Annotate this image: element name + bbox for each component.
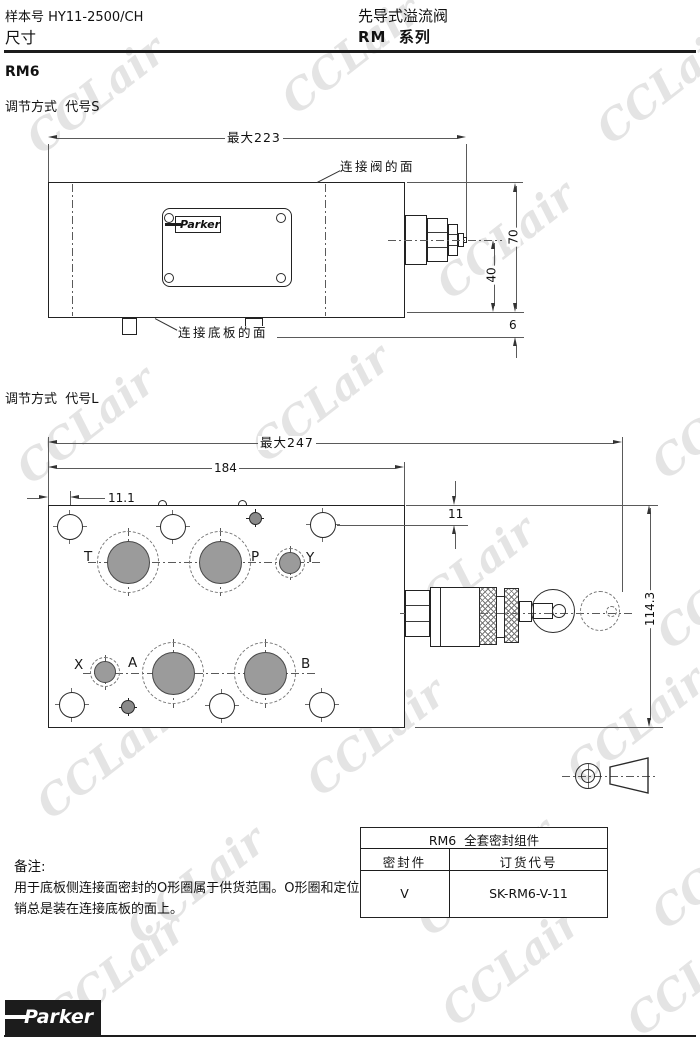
lock-neck: [497, 637, 504, 638]
bolt-hole: [160, 514, 186, 540]
extension-line: [404, 462, 405, 505]
hex-facet: [449, 234, 457, 235]
dim-6-tail: [516, 346, 517, 358]
port-p-label: P: [251, 549, 259, 565]
nameplate-screw-hole: [276, 273, 286, 283]
dim-11-tail: [455, 481, 456, 496]
dim-arrow: [491, 240, 495, 249]
extension-line: [466, 144, 467, 237]
port-b-label: B: [301, 656, 310, 672]
dim-max247-line: [57, 443, 614, 444]
dim-arrow: [613, 440, 622, 444]
extension-line: [407, 182, 523, 183]
series-title: RM 系列: [358, 26, 431, 47]
port-y-label: Y: [306, 550, 314, 566]
dim-arrow: [513, 303, 517, 312]
dim-arrow: [39, 495, 48, 499]
footer-parker-text: Parker: [24, 1006, 93, 1028]
dim-arrow: [647, 718, 651, 727]
plate-face-label: 连接底板的面: [178, 326, 268, 340]
dim-70-line: [516, 186, 517, 309]
centerline: [72, 184, 73, 316]
table-seal-value: V: [360, 886, 449, 901]
key-hole: [552, 604, 566, 618]
dim-arrow: [48, 135, 57, 139]
port-x-label: X: [74, 657, 83, 673]
dim-arrow: [452, 525, 456, 534]
bolt-hole: [57, 514, 83, 540]
pin-front-inner: [581, 769, 595, 783]
dim-arrow: [513, 337, 517, 346]
notes-line2: 销总是装在连接底板的面上。: [14, 898, 183, 917]
hex-facet: [428, 232, 447, 233]
extension-line: [48, 437, 49, 505]
centerline: [325, 184, 326, 316]
port-b: [244, 652, 287, 695]
product-title: 先导式溢流阀: [358, 5, 448, 26]
valve-face-label: 连接阀的面: [340, 160, 415, 174]
watermark-text: CCLair: [642, 350, 700, 488]
dim-arrow: [48, 465, 57, 469]
watermark-text: CCLair: [242, 333, 400, 471]
dim-70-text: 70: [507, 227, 521, 246]
notes-line1: 用于底板侧连接面密封的O形圈属于供货范围。O形圈和定位: [14, 877, 359, 896]
watermark-text: CCLair: [432, 897, 590, 1035]
screw: [249, 512, 262, 525]
model-label: RM6: [5, 64, 39, 80]
leader-line: [155, 318, 178, 331]
key-alt-hole: [606, 606, 617, 617]
watermark-text: CCLair: [17, 25, 175, 163]
parker-nameplate-logo: Parker: [180, 218, 220, 231]
dim-arrow: [70, 495, 79, 499]
watermark-text: CCLair: [7, 355, 165, 493]
dim-arrow: [48, 440, 57, 444]
port-a: [152, 652, 195, 695]
dim-arrow: [452, 496, 456, 505]
extension-line: [277, 337, 524, 338]
dim-184-text: 184: [212, 461, 239, 475]
top-pin-bump: [238, 500, 247, 505]
dim-6-text: 6: [507, 318, 519, 332]
lock-neck: [497, 596, 504, 597]
locating-pin: [122, 318, 137, 335]
port-a-label: A: [128, 655, 137, 671]
hex-facet: [428, 247, 447, 248]
bolt-hole: [209, 693, 235, 719]
bolt-hole: [309, 692, 335, 718]
hex-facet: [406, 621, 429, 622]
extension-line: [48, 144, 49, 182]
table-col-seal: 密封件: [360, 852, 449, 871]
nameplate-screw-hole: [164, 273, 174, 283]
watermark-text: CCLair: [617, 907, 700, 1037]
nameplate-screw-hole: [164, 213, 174, 223]
bolt-hole: [310, 512, 336, 538]
lock-hex-nut: [405, 590, 430, 637]
port-p: [199, 541, 242, 584]
extension-line: [407, 312, 524, 313]
dim-arrow: [647, 505, 651, 514]
footer-rule: [4, 1035, 696, 1037]
bolt-hole: [59, 692, 85, 718]
extension-line: [406, 505, 658, 506]
hex-facet: [449, 245, 457, 246]
drawing2-caption: 调节方式 代号L: [5, 388, 99, 407]
lock-cylinder-step: [440, 588, 441, 646]
dim-max247-text: 最大247: [258, 436, 316, 450]
pin-side-view-icon: [608, 755, 652, 797]
port-x: [94, 661, 116, 683]
table-col-code: 订货代号: [449, 852, 608, 871]
dim-11-tail: [455, 534, 456, 549]
header-rule: [4, 50, 696, 53]
dim-11-text: 11: [446, 507, 465, 521]
port-t: [107, 541, 150, 584]
dim-11-1-text: 11.1: [106, 491, 137, 505]
extension-line: [337, 525, 468, 526]
hex-facet: [406, 605, 429, 606]
port-y: [279, 552, 301, 574]
lock-cylinder: [430, 587, 480, 647]
knurled-ring: [504, 588, 519, 643]
dim-11-1-tail: [27, 498, 39, 499]
dim-arrow: [491, 303, 495, 312]
doc-number: 样本号 HY11-2500/CH: [5, 6, 143, 25]
table-code-value: SK-RM6-V-11: [449, 886, 608, 901]
screw: [121, 700, 135, 714]
datasheet-page: CCLair CCLair CCLair CCLair CCLair CCLai…: [0, 0, 700, 1037]
watermark-text: CCLair: [587, 15, 700, 153]
dim-arrow: [395, 465, 404, 469]
dim-40-text: 40: [485, 265, 499, 284]
extension-line: [622, 437, 623, 592]
dim-arrow: [457, 135, 466, 139]
dim-max223-text: 最大223: [225, 131, 283, 145]
port-t-label: T: [84, 549, 92, 565]
page-title: 尺寸: [5, 26, 36, 48]
table-title: RM6 全套密封组件: [360, 830, 608, 849]
knurled-ring: [479, 587, 497, 645]
drawing1-caption: 调节方式 代号S: [5, 96, 100, 115]
dim-114-3-text: 114.3: [643, 590, 657, 628]
centerline: [388, 240, 502, 241]
watermark-text: CCLair: [642, 800, 700, 938]
dim-11-1-tail: [79, 498, 105, 499]
top-pin-bump: [158, 500, 167, 505]
key-hole-slot: [533, 603, 553, 619]
notes-heading: 备注:: [14, 855, 46, 875]
dim-arrow: [513, 183, 517, 192]
extension-line: [415, 727, 663, 728]
nameplate-screw-hole: [276, 213, 286, 223]
footer-parker-logo: Parker: [5, 1000, 101, 1035]
parker-logo-dash: [165, 223, 181, 226]
